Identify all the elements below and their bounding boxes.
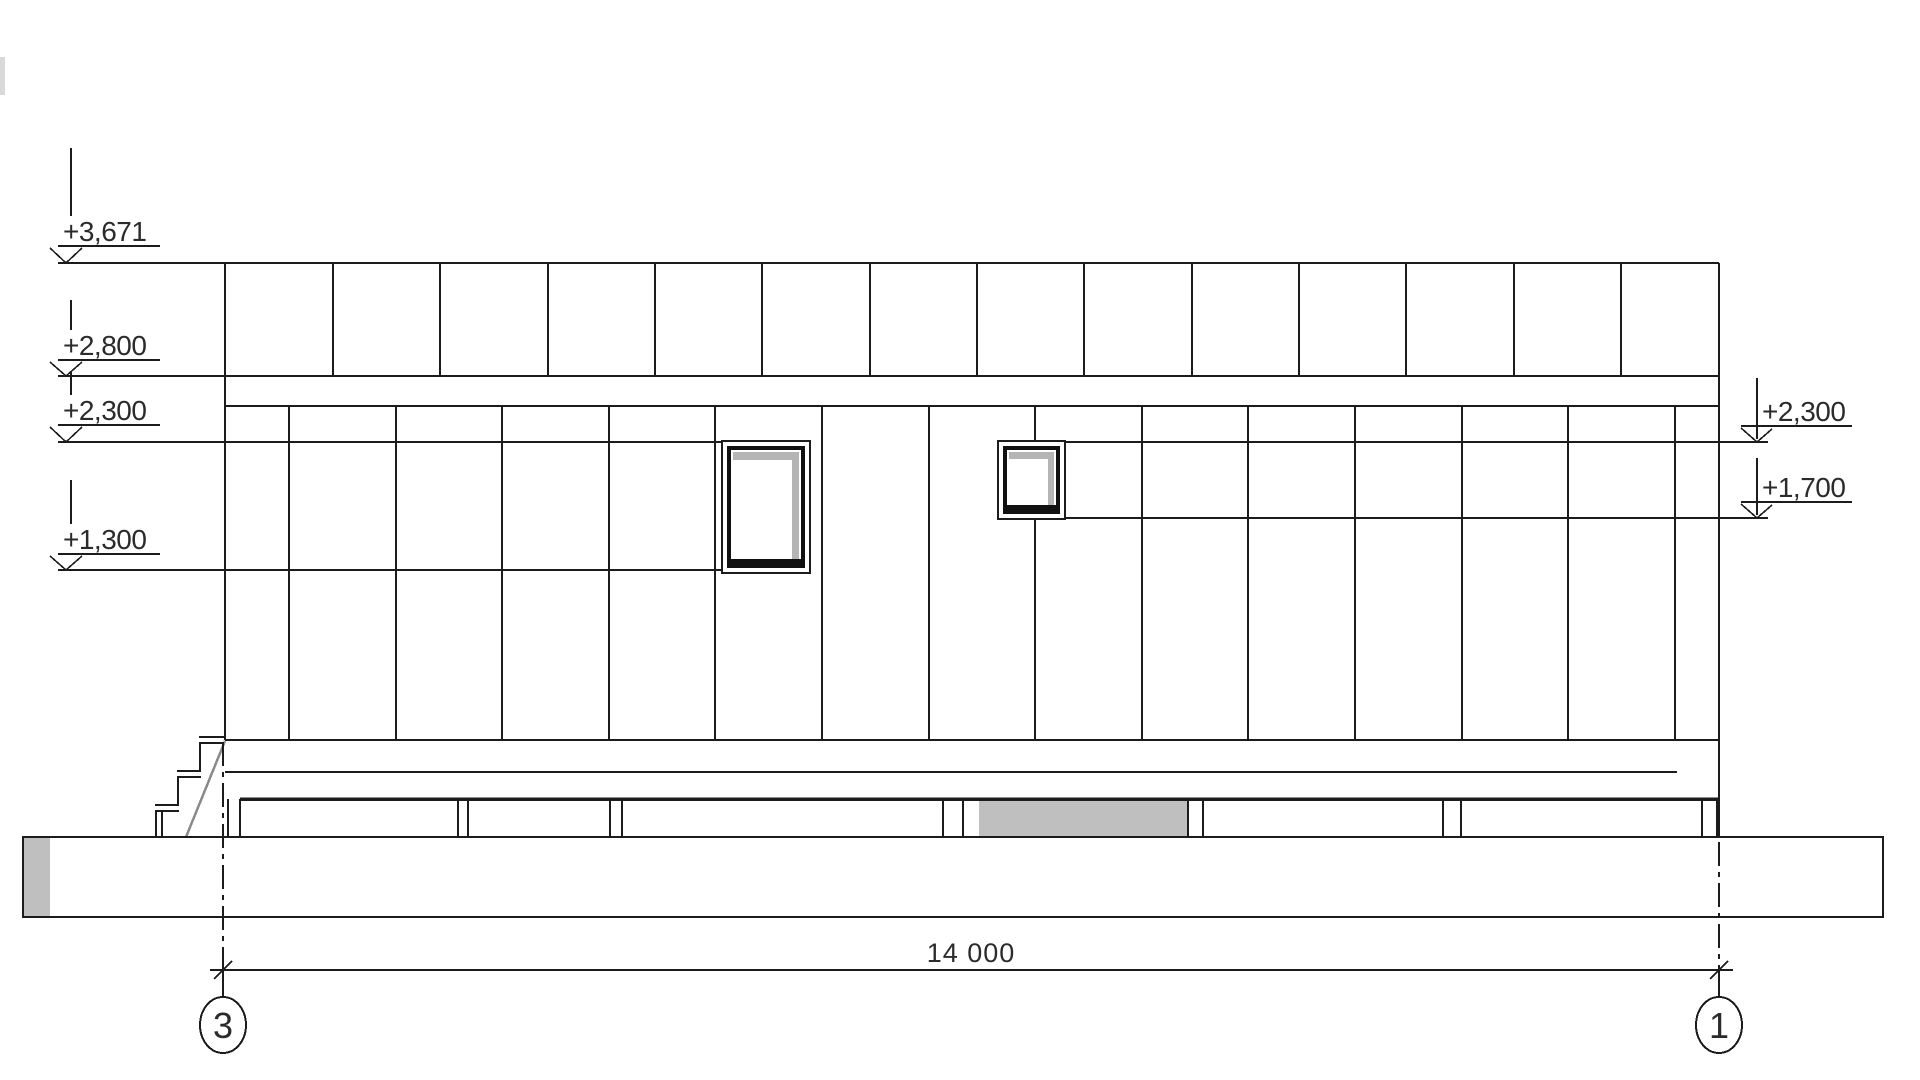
level-label-1300: +1,300 [63, 524, 146, 555]
wall-panel-joints [289, 406, 1675, 740]
level-label-1700: +1,700 [1762, 472, 1845, 503]
facade [58, 263, 1768, 838]
stair-stringer-diagonal [186, 741, 225, 837]
level-check-2300-left [50, 427, 82, 442]
foundation-slab [23, 837, 1883, 917]
level-check-3671 [50, 248, 82, 263]
level-label-2300-right: +2,300 [1762, 396, 1845, 427]
elevation-markers-left: +3,671 +2,800 +2,300 +1,300 [50, 148, 160, 570]
foundation-posts [228, 799, 1717, 837]
window-large [722, 441, 810, 573]
crawlspace-shaded-infill [979, 801, 1188, 837]
parapet-panel-joints [333, 263, 1621, 376]
level-check-1300 [50, 556, 82, 570]
level-label-3671: +3,671 [63, 216, 146, 247]
axis-label-1: 1 [1709, 1005, 1729, 1046]
elevation-markers-right: +2,300 +1,700 [1741, 378, 1852, 518]
window-large-top-shadow [733, 452, 799, 460]
window-large-right-shadow [792, 452, 799, 562]
stair-tread-2 [177, 771, 201, 777]
level-label-2800: +2,800 [63, 330, 146, 361]
window-small [998, 441, 1065, 519]
deck-base [225, 740, 1719, 837]
elevation-drawing: +3,671 +2,800 +2,300 +1,300 +2,300 +1,70… [0, 0, 1920, 1080]
level-check-2800 [50, 362, 82, 376]
dimension-value: 14 000 [927, 938, 1016, 968]
elevation-drawing-canvas: +3,671 +2,800 +2,300 +1,300 +2,300 +1,70… [0, 0, 1920, 1080]
level-label-2300-left: +2,300 [63, 395, 146, 426]
window-small-bottom-bar [1007, 505, 1056, 510]
stair-riser-3 [156, 811, 162, 837]
stairs [155, 737, 225, 837]
window-large-frame [729, 448, 803, 566]
stair-tread-3 [155, 805, 179, 811]
edge-artifact [0, 57, 5, 95]
slab-outline [23, 837, 1883, 917]
window-small-top-shadow [1009, 452, 1054, 459]
dimension-and-axes: 14 000 3 1 [200, 742, 1742, 1053]
window-small-right-shadow [1048, 452, 1054, 506]
axis-bubble-connectors [223, 970, 1719, 997]
stair-tread-1 [199, 737, 225, 743]
window-large-bottom-bar [731, 559, 801, 565]
slab-left-shaded-end [24, 838, 50, 916]
axis-label-3: 3 [213, 1005, 233, 1046]
